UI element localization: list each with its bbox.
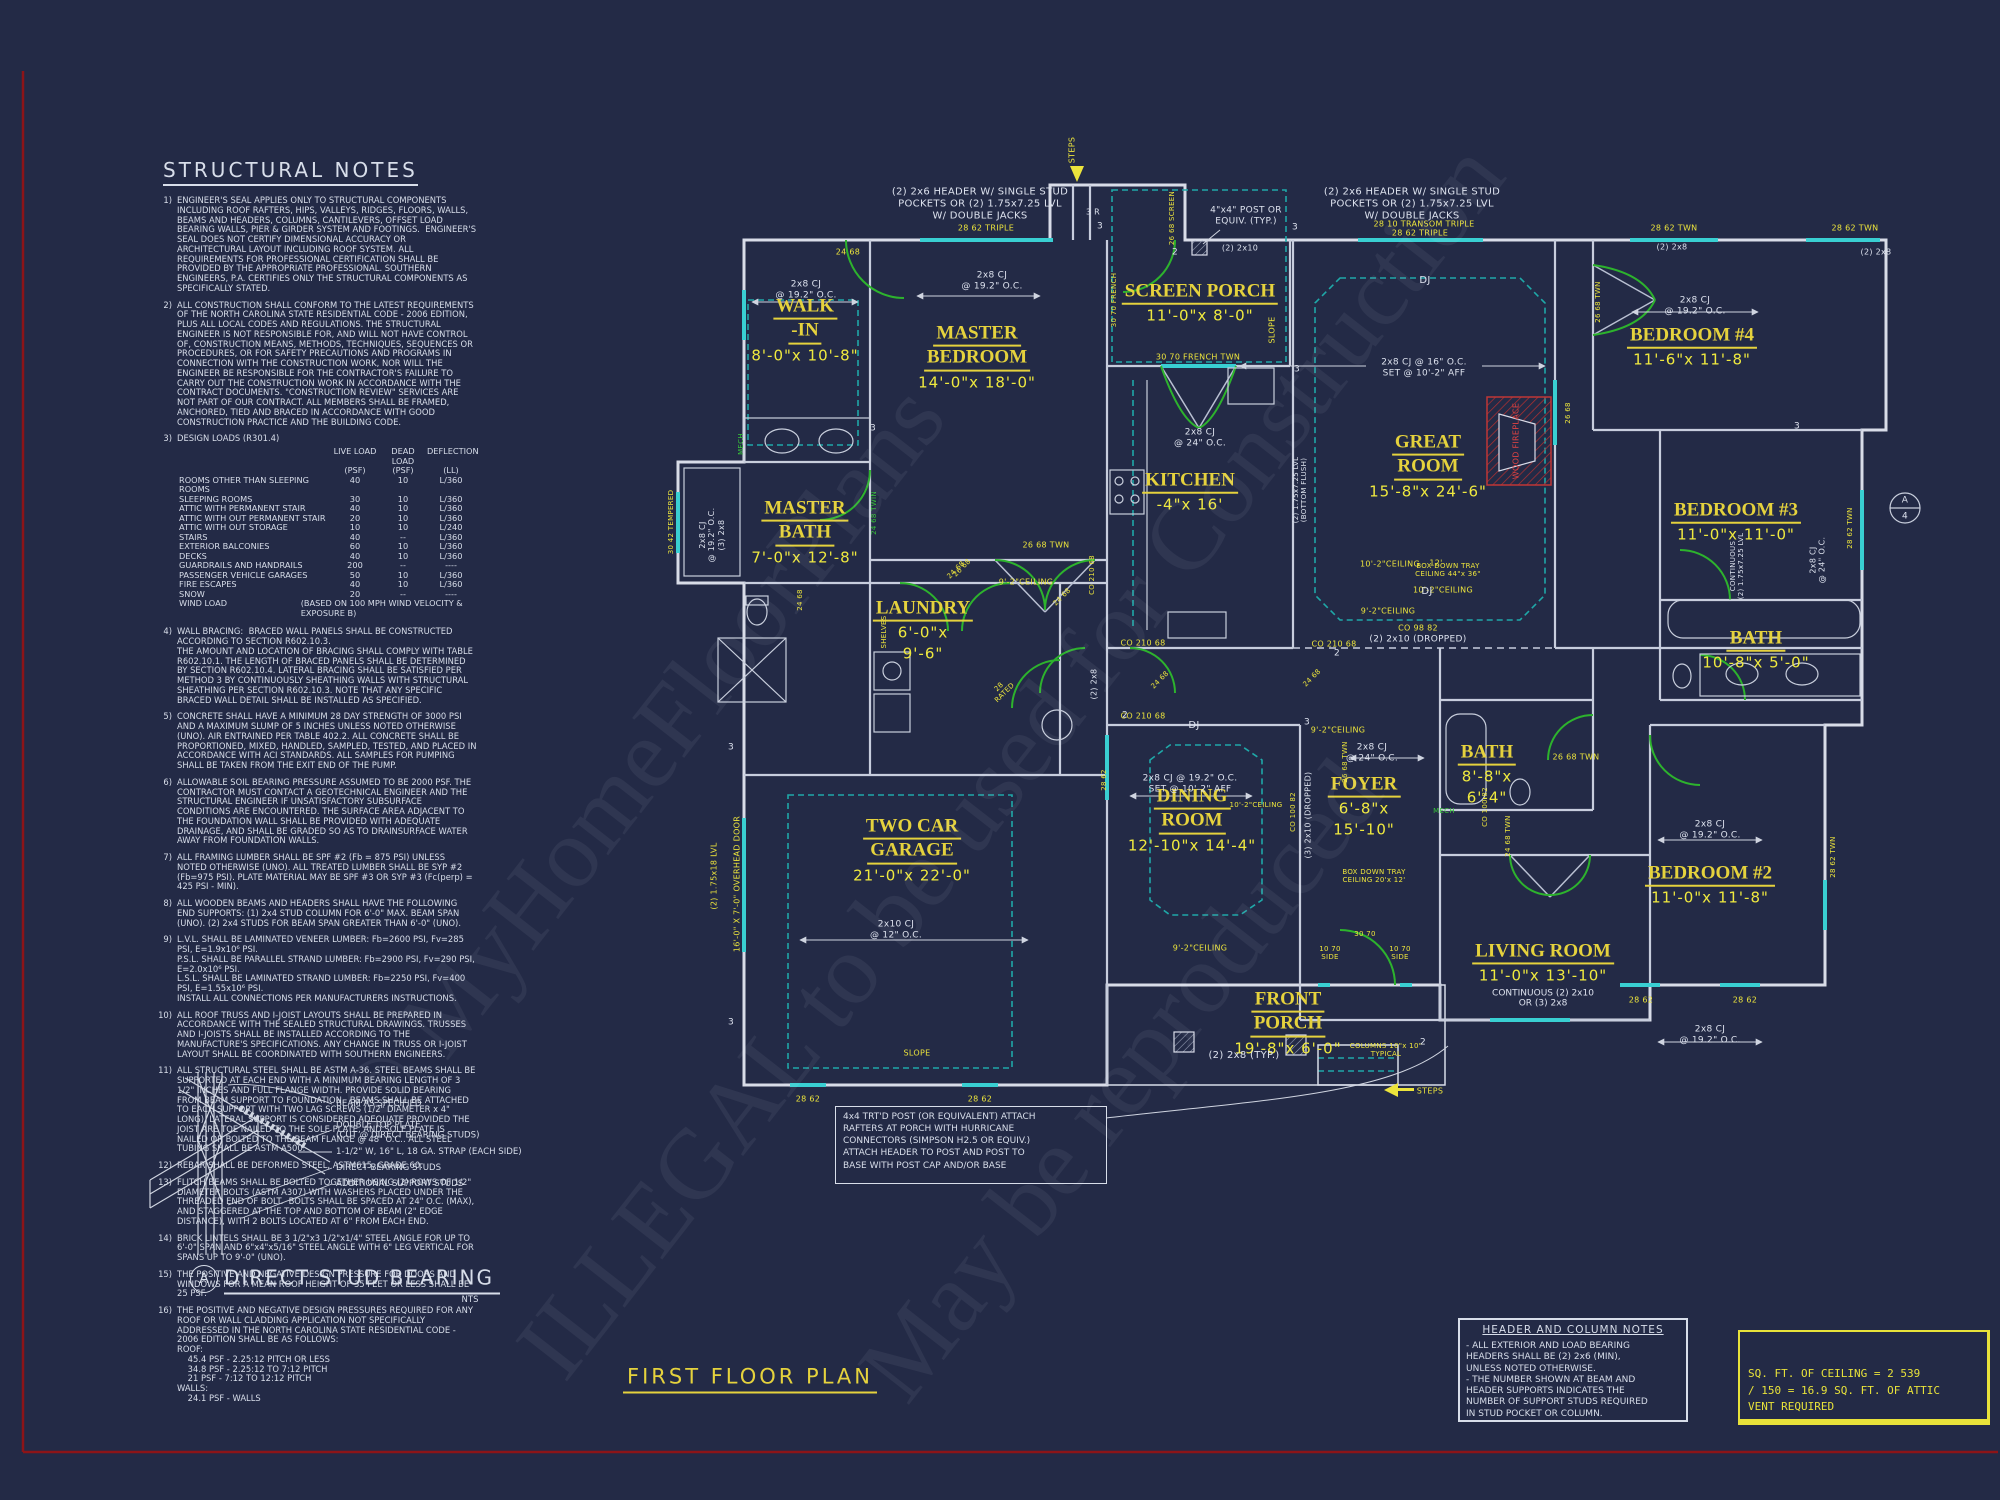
note-number: 3) bbox=[155, 434, 172, 620]
loads-row: ATTIC WITH OUT STORAGE1010L/240 bbox=[179, 523, 477, 533]
note-text: ALL CONSTRUCTION SHALL CONFORM TO THE LA… bbox=[177, 301, 477, 428]
note-text: ALLOWABLE SOIL BEARING PRESSURE ASSUMED … bbox=[177, 778, 477, 846]
loads-row: ROOMS OTHER THAN SLEEPING ROOMS4010L/360 bbox=[179, 476, 477, 495]
room-label: BEDROOM #411'-6"x 11'-8" bbox=[1627, 325, 1757, 370]
post-note-line: CONNECTORS (SIMPSON H2.5 OR EQUIV.) bbox=[843, 1135, 1099, 1147]
note-number: 15) bbox=[155, 1270, 172, 1299]
room-name: SCREEN PORCH bbox=[1122, 281, 1278, 305]
note-item: 2)ALL CONSTRUCTION SHALL CONFORM TO THE … bbox=[155, 301, 477, 428]
plan-annotation: 24 68 TWN bbox=[1504, 815, 1512, 856]
plan-annotation: 9'-2"CEILING bbox=[1361, 606, 1416, 615]
note-number: 8) bbox=[155, 899, 172, 928]
plan-annotation: 3 bbox=[1794, 422, 1800, 433]
plan-annotation: (2) 2x10 bbox=[1222, 243, 1258, 252]
loads-wind-value: (BASED ON 100 MPH WIND VELOCITY & EXPOSU… bbox=[301, 599, 477, 618]
plan-annotation: DJ bbox=[1188, 720, 1199, 732]
note-number: 13) bbox=[155, 1178, 172, 1227]
plan-annotation: STEPS bbox=[1417, 1086, 1443, 1095]
room-name: BATH bbox=[1458, 742, 1516, 766]
loads-row: FIRE ESCAPES4010L/360 bbox=[179, 580, 477, 590]
attic-vent-calc-box: SQ. FT. OF CEILING = 2 539/ 150 = 16.9 S… bbox=[1738, 1330, 1990, 1425]
room-dims: 11'-0"x 11'-8" bbox=[1645, 890, 1775, 907]
plan-annotation: MECH bbox=[1433, 807, 1455, 815]
note-text: THE POSITIVE AND NEGATIVE DESIGN PRESSUR… bbox=[177, 1306, 477, 1404]
structural-notes-panel: STRUCTURAL NOTES 1)ENGINEER'S SEAL APPLI… bbox=[155, 158, 477, 1411]
loads-name: WIND LOAD bbox=[179, 599, 301, 618]
plan-annotation: A bbox=[1902, 496, 1908, 507]
plan-annotation: 3 bbox=[728, 743, 734, 754]
plan-annotation: 12' bbox=[1429, 558, 1442, 567]
note-item: 7)ALL FRAMING LUMBER SHALL BE SPF #2 (Fb… bbox=[155, 853, 477, 892]
note-number: 5) bbox=[155, 712, 172, 771]
plan-annotation: 10 70 SIDE bbox=[1319, 945, 1341, 962]
plan-annotation: 30 70 bbox=[1354, 930, 1376, 938]
room-dims: 14'-0"x 18'-0" bbox=[918, 374, 1036, 391]
header-note-line: - ALL EXTERIOR AND LOAD BEARING bbox=[1466, 1341, 1680, 1352]
plan-annotation: WOOD FIREPLACE bbox=[1511, 403, 1520, 479]
plan-annotation: 28 62 TWN bbox=[1829, 836, 1837, 877]
plan-annotation: 2x8 CJ @ 19.2" O.C. bbox=[961, 270, 1022, 291]
plan-annotation: 2 bbox=[1334, 649, 1340, 660]
plan-annotation: 2x8 CJ @ 19.2" O.C. bbox=[1679, 819, 1740, 840]
plan-annotation: 30 70 FRENCH TWN bbox=[1156, 352, 1240, 361]
plan-annotation: 28 62 TWN bbox=[1846, 507, 1854, 548]
plan-annotation: CO 100 82 bbox=[1481, 787, 1489, 827]
plan-annotation: 28 62 TWN bbox=[1832, 223, 1879, 232]
plan-annotation: 2 bbox=[1172, 248, 1178, 259]
plan-annotation: 2 bbox=[1420, 1038, 1426, 1049]
room-dims: 8'-8"x bbox=[1458, 769, 1516, 786]
plan-annotation: 2 bbox=[1122, 711, 1128, 722]
header-column-notes-box: HEADER AND COLUMN NOTES - ALL EXTERIOR A… bbox=[1458, 1318, 1688, 1422]
room-name: LIVING ROOM bbox=[1472, 940, 1614, 964]
note-text: ENGINEER'S SEAL APPLIES ONLY TO STRUCTUR… bbox=[177, 196, 477, 294]
plan-annotation: BOX DOWN TRAY CEILING 44"x 36" bbox=[1415, 562, 1481, 579]
note-text: ALL WOODEN BEAMS AND HEADERS SHALL HAVE … bbox=[177, 899, 477, 928]
room-sub: CONTINUOUS (2) 2x10 OR (3) 2x8 bbox=[1472, 988, 1614, 1010]
note-item: 4)WALL BRACING: BRACED WALL PANELS SHALL… bbox=[155, 627, 477, 705]
note-item: 6)ALLOWABLE SOIL BEARING PRESSURE ASSUME… bbox=[155, 778, 477, 846]
room-dims: 15'-8"x 24'-6" bbox=[1369, 483, 1487, 500]
note-text: DESIGN LOADS (R301.4) bbox=[177, 434, 477, 444]
note-item: 5)CONCRETE SHALL HAVE A MINIMUM 28 DAY S… bbox=[155, 712, 477, 771]
detail-bubble: A bbox=[190, 1265, 218, 1293]
plan-annotation: 3 bbox=[1304, 718, 1310, 729]
room-name: BEDROOM #4 bbox=[1627, 325, 1757, 349]
blueprint-sheet: STRUCTURAL NOTES 1)ENGINEER'S SEAL APPLI… bbox=[0, 0, 2000, 1500]
porch-post-note-box: 4x4 TRT'D POST (OR EQUIVALENT) ATTACHRAF… bbox=[835, 1106, 1107, 1184]
note-body: CONCRETE SHALL HAVE A MINIMUM 28 DAY STR… bbox=[177, 712, 477, 771]
note-number: 1) bbox=[155, 196, 172, 294]
plan-annotation: 4 bbox=[1902, 512, 1908, 523]
plan-annotation: 2x8 CJ @ 19.2" O.C. bbox=[1664, 295, 1725, 316]
note-number: 12) bbox=[155, 1161, 172, 1171]
room-dims: 10'-8"x 5'-0" bbox=[1702, 655, 1809, 672]
note-number: 4) bbox=[155, 627, 172, 705]
sqft-line: SQ. FT. OF CEILING = 2 539 bbox=[1748, 1366, 1987, 1383]
plan-annotation: 26 68 TWN bbox=[1594, 281, 1602, 322]
header-note-line: - THE NUMBER SHOWN AT BEAM AND bbox=[1466, 1375, 1680, 1386]
note-text: BRICK LINTELS SHALL BE 3 1/2"x3 1/2"x1/4… bbox=[177, 1234, 477, 1263]
note-item: 8)ALL WOODEN BEAMS AND HEADERS SHALL HAV… bbox=[155, 899, 477, 928]
plan-annotation: (2) 2x8 bbox=[1861, 247, 1892, 256]
plan-annotation: (2) 2x6 HEADER W/ SINGLE STUD POCKETS OR… bbox=[892, 186, 1068, 221]
loads-value: 10 bbox=[379, 476, 427, 495]
note-item: 16)THE POSITIVE AND NEGATIVE DESIGN PRES… bbox=[155, 1306, 477, 1404]
plan-annotation: CONTINUOUS (2) 1.75x7.25 LVL bbox=[1729, 533, 1746, 600]
note-number: 10) bbox=[155, 1011, 172, 1060]
note-number: 14) bbox=[155, 1234, 172, 1263]
plan-annotation: 26 68 SCREEN bbox=[1168, 191, 1176, 245]
loads-name: ROOMS OTHER THAN SLEEPING ROOMS bbox=[179, 476, 331, 495]
plan-annotation: 2x8 CJ @ 19.2" O.C. SET @ 10'-2" AFF bbox=[1143, 773, 1238, 794]
detail-callout: DOUBLE TOP PLATE (CUT @ DIRECT BEARING S… bbox=[336, 1121, 479, 1142]
structural-notes-title: STRUCTURAL NOTES bbox=[163, 158, 418, 186]
note-number: 7) bbox=[155, 853, 172, 892]
plan-annotation: CO 98 82 bbox=[1398, 623, 1438, 632]
plan-annotation: 9'-2"CEILING bbox=[999, 577, 1054, 586]
note-item: 14)BRICK LINTELS SHALL BE 3 1/2"x3 1/2"x… bbox=[155, 1234, 477, 1263]
plan-annotation: 9'-2"CEILING bbox=[1311, 725, 1366, 734]
room-label: LIVING ROOM11'-0"x 13'-10"CONTINUOUS (2)… bbox=[1472, 940, 1614, 1009]
note-body: DESIGN LOADS (R301.4)LIVE LOADDEAD LOADD… bbox=[177, 434, 477, 620]
plan-annotation: 2x8 CJ @ 24" O.C. bbox=[1346, 742, 1398, 763]
plan-annotation: 28 62 TRIPLE bbox=[958, 223, 1014, 232]
plan-annotation: (2) 2x10 (DROPPED) bbox=[1369, 635, 1466, 646]
loads-value: L/360 bbox=[427, 476, 475, 495]
note-body: ALL CONSTRUCTION SHALL CONFORM TO THE LA… bbox=[177, 301, 477, 428]
room-label: GREATROOM15'-8"x 24'-6" bbox=[1369, 432, 1487, 501]
note-number: 2) bbox=[155, 301, 172, 428]
plan-annotation: 28 62 TWN bbox=[1651, 223, 1698, 232]
plan-annotation: CO 210 68 bbox=[1311, 639, 1356, 648]
loads-col-header: LIVE LOAD bbox=[331, 447, 379, 466]
note-number: 16) bbox=[155, 1306, 172, 1404]
note-body: WALL BRACING: BRACED WALL PANELS SHALL B… bbox=[177, 627, 477, 705]
plan-annotation: COLUMNS 10"x 10" TYPICAL bbox=[1350, 1042, 1422, 1059]
plan-annotation: 28 62 bbox=[1733, 995, 1757, 1004]
note-body: ALLOWABLE SOIL BEARING PRESSURE ASSUMED … bbox=[177, 778, 477, 846]
post-note-line: BASE WITH POST CAP AND/OR BASE bbox=[843, 1160, 1099, 1172]
room-label: MASTERBEDROOM14'-0"x 18'-0" bbox=[918, 323, 1036, 392]
detail-callout: 1-1/2" W, 16" L, 18 GA. STRAP (EACH SIDE… bbox=[336, 1147, 522, 1157]
room-label: WALK-IN8'-0"x 10'-8" bbox=[751, 296, 858, 365]
plan-annotation: 2x8 CJ @ 19.2" O.C. (3) 2x8 bbox=[698, 508, 726, 563]
room-dims: 8'-0"x 10'-8" bbox=[751, 347, 858, 364]
plan-annotation: 3 R bbox=[1086, 207, 1100, 216]
header-note-line: HEADER SUPPORTS INDICATES THE bbox=[1466, 1386, 1680, 1397]
plan-annotation: 3 bbox=[1097, 222, 1103, 233]
sqft-line: VENT REQUIRED bbox=[1748, 1399, 1987, 1416]
loads-col-header: DEFLECTION bbox=[427, 447, 475, 466]
plan-annotation: 10 70 SIDE bbox=[1389, 945, 1411, 962]
loads-spacer bbox=[179, 447, 331, 466]
header-note-line: NUMBER OF SUPPORT STUDS REQUIRED bbox=[1466, 1397, 1680, 1408]
room-dims: 11'-0"x 8'-0" bbox=[1122, 308, 1278, 325]
room-label: BATH10'-8"x 5'-0" bbox=[1702, 628, 1809, 673]
plan-annotation: 26 68 TWN bbox=[1553, 752, 1600, 761]
note-item: 3)DESIGN LOADS (R301.4)LIVE LOADDEAD LOA… bbox=[155, 434, 477, 620]
plan-annotation: SLOPE bbox=[904, 1048, 931, 1057]
note-number: 6) bbox=[155, 778, 172, 846]
loads-col-header: DEAD LOAD bbox=[379, 447, 427, 466]
detail-title: DIRECT STUD BEARING bbox=[224, 1266, 500, 1295]
plan-annotation: 30 42 TEMPERED bbox=[667, 490, 675, 555]
detail-callout: BEAM AS SPECIFIED bbox=[336, 1099, 422, 1109]
room-label: BEDROOM #211'-0"x 11'-8" bbox=[1645, 863, 1775, 908]
structural-notes-list: 1)ENGINEER'S SEAL APPLIES ONLY TO STRUCT… bbox=[155, 196, 477, 1404]
note-text: ALL FRAMING LUMBER SHALL BE SPF #2 (Fb =… bbox=[177, 853, 477, 892]
room-label: SCREEN PORCH11'-0"x 8'-0" bbox=[1122, 281, 1278, 326]
plan-annotation: STEPS bbox=[1067, 137, 1076, 163]
plan-annotation: 26 68 bbox=[1564, 402, 1572, 424]
plan-annotation: 30 70 FRENCH bbox=[1110, 273, 1118, 328]
note-body: ENGINEER'S SEAL APPLIES ONLY TO STRUCTUR… bbox=[177, 196, 477, 294]
plan-annotation: 2x8 CJ @ 19.2" O.C. bbox=[1679, 1024, 1740, 1045]
room-dims: 11'-6"x 11'-8" bbox=[1627, 352, 1757, 369]
note-body: BRICK LINTELS SHALL BE 3 1/2"x3 1/2"x1/4… bbox=[177, 1234, 477, 1263]
room-dims: 11'-0"x 13'-10" bbox=[1472, 968, 1614, 985]
room-name: MASTERBEDROOM bbox=[918, 323, 1036, 372]
plan-annotation: 2x8 CJ @ 24" O.C. bbox=[1809, 537, 1828, 584]
note-body: ALL FRAMING LUMBER SHALL BE SPF #2 (Fb =… bbox=[177, 853, 477, 892]
header-note-line: UNLESS NOTED OTHERWISE. bbox=[1466, 1364, 1680, 1375]
note-text: CONCRETE SHALL HAVE A MINIMUM 28 DAY STR… bbox=[177, 712, 477, 771]
plan-annotation: 26 68 TWN bbox=[1023, 540, 1070, 549]
room-name: BEDROOM #2 bbox=[1645, 863, 1775, 887]
detail-callout: ADDITIONAL SUPPORT STUDS bbox=[336, 1179, 463, 1189]
plan-annotation: 16'-0" X 7'-0" OVERHEAD DOOR bbox=[732, 816, 741, 952]
plan-annotation: 28 62 bbox=[968, 1094, 992, 1103]
loads-row: EXTERIOR BALCONIES6010L/360 bbox=[179, 542, 477, 552]
room-name: BEDROOM #3 bbox=[1671, 500, 1801, 524]
note-body: THE POSITIVE AND NEGATIVE DESIGN PRESSUR… bbox=[177, 1306, 477, 1404]
plan-title: FIRST FLOOR PLAN bbox=[623, 1365, 877, 1394]
loads-wind-row: WIND LOAD(BASED ON 100 MPH WIND VELOCITY… bbox=[179, 599, 477, 618]
room-name: BATH bbox=[1702, 628, 1809, 652]
design-loads-table: LIVE LOADDEAD LOADDEFLECTION(PSF)(PSF)(L… bbox=[179, 447, 477, 618]
loads-value: 40 bbox=[331, 476, 379, 495]
plan-annotation: 4"x4" POST OR EQUIV. (TYP.) bbox=[1210, 205, 1282, 226]
note-number: 11) bbox=[155, 1066, 172, 1154]
plan-annotation: 28 62 bbox=[1100, 769, 1108, 791]
post-note-line: ATTACH HEADER TO POST AND POST TO bbox=[843, 1147, 1099, 1159]
plan-annotation: SHELVES bbox=[880, 615, 888, 648]
header-note-line: HEADERS SHALL BE (2) 2x6 (MIN), bbox=[1466, 1352, 1680, 1363]
detail-scale: NTS bbox=[462, 1295, 479, 1305]
note-number: 9) bbox=[155, 935, 172, 1003]
post-note-line: 4x4 TRT'D POST (OR EQUIVALENT) ATTACH bbox=[843, 1111, 1099, 1123]
room-name: WALK-IN bbox=[751, 296, 858, 345]
header-column-notes-body: - ALL EXTERIOR AND LOAD BEARINGHEADERS S… bbox=[1466, 1341, 1680, 1420]
plan-annotation: MECH bbox=[737, 433, 745, 455]
header-note-line: IN STUD POCKET OR COLUMN. bbox=[1466, 1409, 1680, 1420]
note-item: 1)ENGINEER'S SEAL APPLIES ONLY TO STRUCT… bbox=[155, 196, 477, 294]
plan-annotation: 28 62 bbox=[1629, 995, 1653, 1004]
plan-annotation: 2x8 CJ @ 19.2" O.C. bbox=[775, 279, 836, 300]
loads-header: LIVE LOADDEAD LOADDEFLECTION bbox=[179, 447, 477, 466]
note-body: ALL WOODEN BEAMS AND HEADERS SHALL HAVE … bbox=[177, 899, 477, 928]
plan-annotation: (2) 2x8 (TYP.) bbox=[1208, 1050, 1279, 1062]
detail-callout: DIRECT BEARING STUDS bbox=[336, 1163, 441, 1173]
plan-annotation: 24 68 bbox=[836, 247, 860, 256]
room-name: GREATROOM bbox=[1369, 432, 1487, 481]
plan-annotation: DJ bbox=[1421, 586, 1432, 598]
sqft-line: / 150 = 16.9 SQ. FT. OF ATTIC bbox=[1748, 1383, 1987, 1400]
header-column-notes-title: HEADER AND COLUMN NOTES bbox=[1466, 1324, 1680, 1337]
plan-annotation: 3 bbox=[1292, 223, 1298, 234]
plan-annotation: (2) 1.75x18 LVL bbox=[709, 842, 718, 909]
plan-annotation: (2) 2x8 bbox=[1657, 242, 1688, 251]
note-text: WALL BRACING: BRACED WALL PANELS SHALL B… bbox=[177, 627, 477, 705]
plan-annotation: 10'-2"CEILING bbox=[1360, 559, 1420, 568]
post-note-line: RAFTERS AT PORCH WITH HURRICANE bbox=[843, 1123, 1099, 1135]
